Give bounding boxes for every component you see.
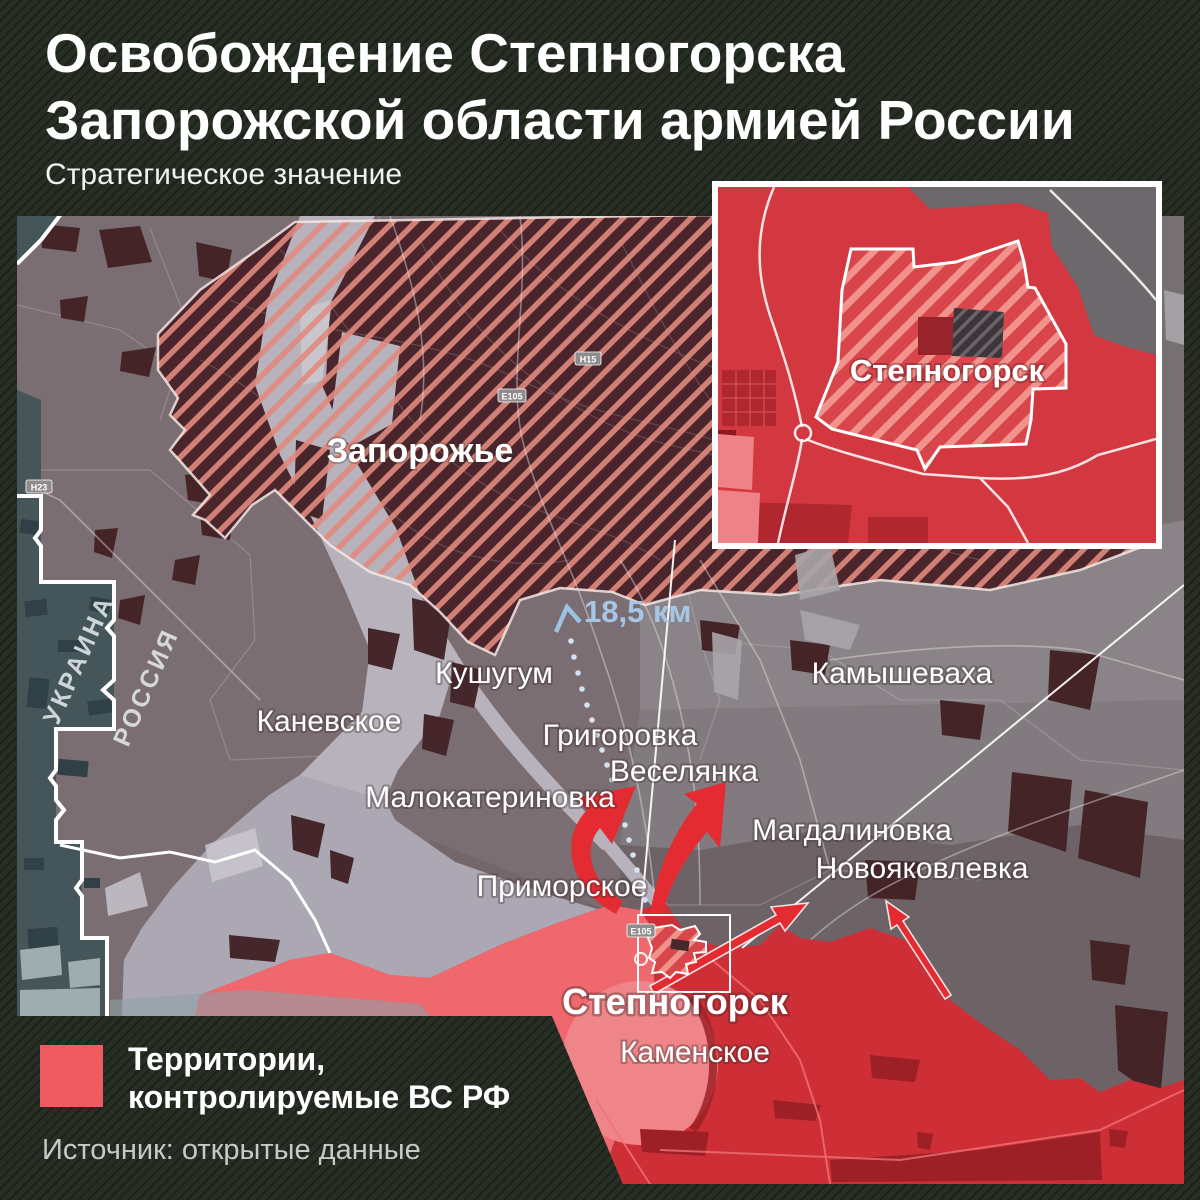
svg-text:Запорожье: Запорожье	[327, 432, 514, 470]
svg-text:Каменское: Каменское	[620, 1036, 770, 1069]
svg-text:18,5 км: 18,5 км	[584, 594, 691, 629]
svg-text:Каневское: Каневское	[257, 705, 402, 738]
svg-text:Кушугум: Кушугум	[435, 657, 553, 690]
svg-text:Приморское: Приморское	[477, 870, 648, 903]
svg-text:Григоровка: Григоровка	[543, 719, 698, 752]
svg-text:Е105: Е105	[630, 927, 651, 937]
svg-text:Н23: Н23	[31, 483, 48, 493]
svg-text:Камышеваха: Камышеваха	[812, 657, 993, 690]
svg-text:Малокатериновка: Малокатериновка	[365, 781, 615, 814]
svg-text:Степногорск: Степногорск	[562, 981, 789, 1022]
svg-text:Веселянка: Веселянка	[610, 755, 758, 788]
svg-text:Новояковлевка: Новояковлевка	[816, 852, 1029, 885]
svg-text:Н15: Н15	[580, 355, 597, 365]
svg-text:Степногорск: Степногорск	[850, 353, 1045, 388]
svg-text:Е105: Е105	[501, 392, 522, 402]
svg-text:Магдалиновка: Магдалиновка	[752, 814, 952, 847]
